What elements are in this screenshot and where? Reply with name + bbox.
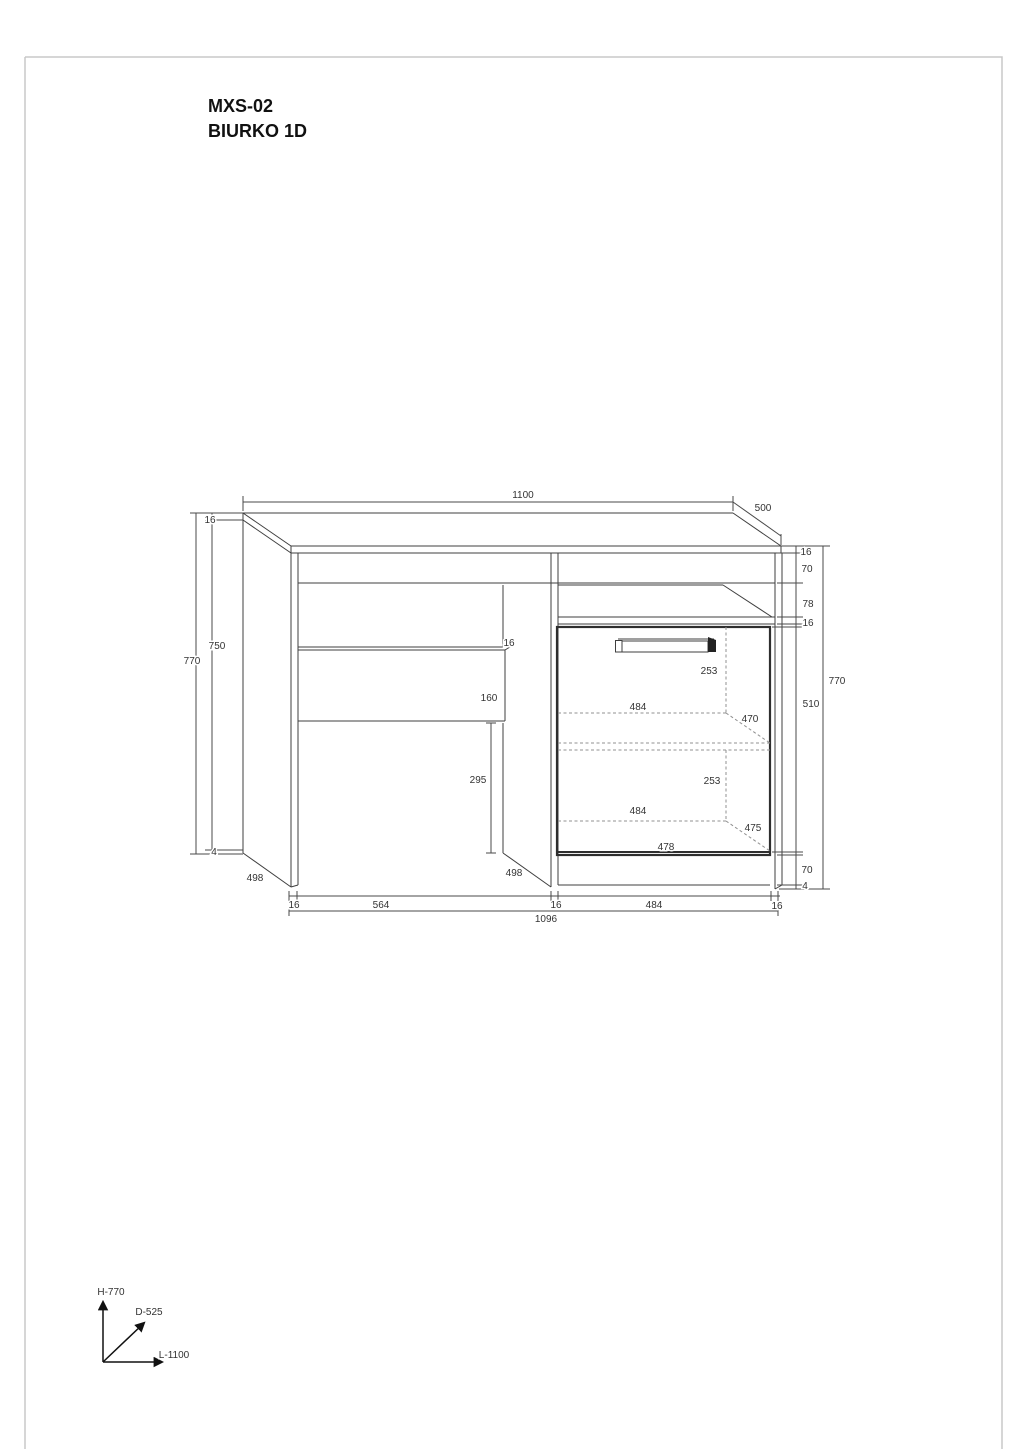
dimension-label-bottom-kneehole: 564: [373, 900, 390, 911]
dimension-label-shelf-space-lower: 253: [704, 776, 721, 787]
dimension-label-left-bottom-gap: 4: [211, 847, 217, 858]
dimension-label-right-overall-height: 770: [829, 676, 846, 687]
top-rail-and-shelf: [298, 583, 775, 624]
centre-divider: [503, 553, 558, 887]
dimension-label-bottom-cabinet: 484: [646, 900, 663, 911]
dimension-label-door-width: 478: [658, 842, 675, 853]
bottom-shelf-and-plinth: [558, 852, 770, 885]
dimension-label-left-side-height: 750: [209, 641, 226, 652]
dimension-label-shelf-depth-upper: 470: [742, 714, 759, 725]
product-title: MXS-02 BIURKO 1D: [208, 96, 307, 141]
dimension-label-right-shelf-thk: 16: [802, 618, 814, 629]
desk-top: [243, 513, 781, 553]
dimension-label-divider-depth: 498: [506, 868, 523, 879]
dimension-label-bottom-right-panel: 16: [771, 901, 783, 912]
dimension-label-right-rail: 70: [801, 564, 813, 575]
dimension-label-right-plinth: 70: [801, 865, 813, 876]
hidden-shelf-lines: [558, 627, 770, 851]
depth-axis-arrow: [103, 1323, 144, 1362]
drawer: [298, 647, 510, 721]
dimension-label-bottom-divider: 16: [550, 900, 562, 911]
dimension-label-bottom-left-panel: 16: [288, 900, 300, 911]
dimension-label-left-overall-height: 770: [184, 656, 201, 667]
sheet-border: [25, 57, 1002, 1449]
dimension-label-right-door-interior: 510: [803, 699, 820, 710]
dimension-label-shelf-width-lower: 484: [630, 806, 647, 817]
length-axis-label: L-1100: [159, 1350, 190, 1361]
dimension-label-left-top-thickness: 16: [204, 515, 216, 526]
desk-dimension-drawing: MXS-02 BIURKO 1D: [0, 0, 1024, 1449]
technical-drawing-sheet: MXS-02 BIURKO 1D: [0, 0, 1024, 1449]
dimension-label-right-niche: 78: [802, 599, 814, 610]
dimension-label-shelf-space-upper: 253: [701, 666, 718, 677]
dimension-label-drawer-front-thk: 16: [503, 638, 515, 649]
dimension-label-shelf-depth-lower: 475: [745, 823, 762, 834]
product-name: BIURKO 1D: [208, 121, 307, 141]
dimension-label-left-panel-depth: 498: [247, 873, 264, 884]
dimension-label-top-depth: 500: [755, 503, 772, 514]
height-axis-label: H-770: [97, 1287, 125, 1298]
door-handle-icon: [616, 637, 717, 652]
left-side-panel: [243, 520, 298, 887]
dimension-labels: 1100500167707504498167078167705107041616…: [184, 490, 846, 925]
dimension-label-kneehole-height: 295: [470, 775, 487, 786]
depth-axis-label: D-525: [135, 1307, 163, 1318]
axis-indicator: H-770 D-525 L-1100: [97, 1287, 189, 1362]
right-side-panel: [775, 553, 782, 889]
product-code: MXS-02: [208, 96, 273, 116]
dimension-label-drawer-height: 160: [481, 693, 498, 704]
dimension-label-top-length: 1100: [512, 490, 534, 501]
dimension-label-shelf-width-upper: 484: [630, 702, 647, 713]
dimension-label-bottom-overall: 1096: [535, 914, 558, 925]
dimension-label-right-top-thickness: 16: [800, 547, 812, 558]
dimension-label-right-bottom-gap: 4: [802, 881, 808, 892]
